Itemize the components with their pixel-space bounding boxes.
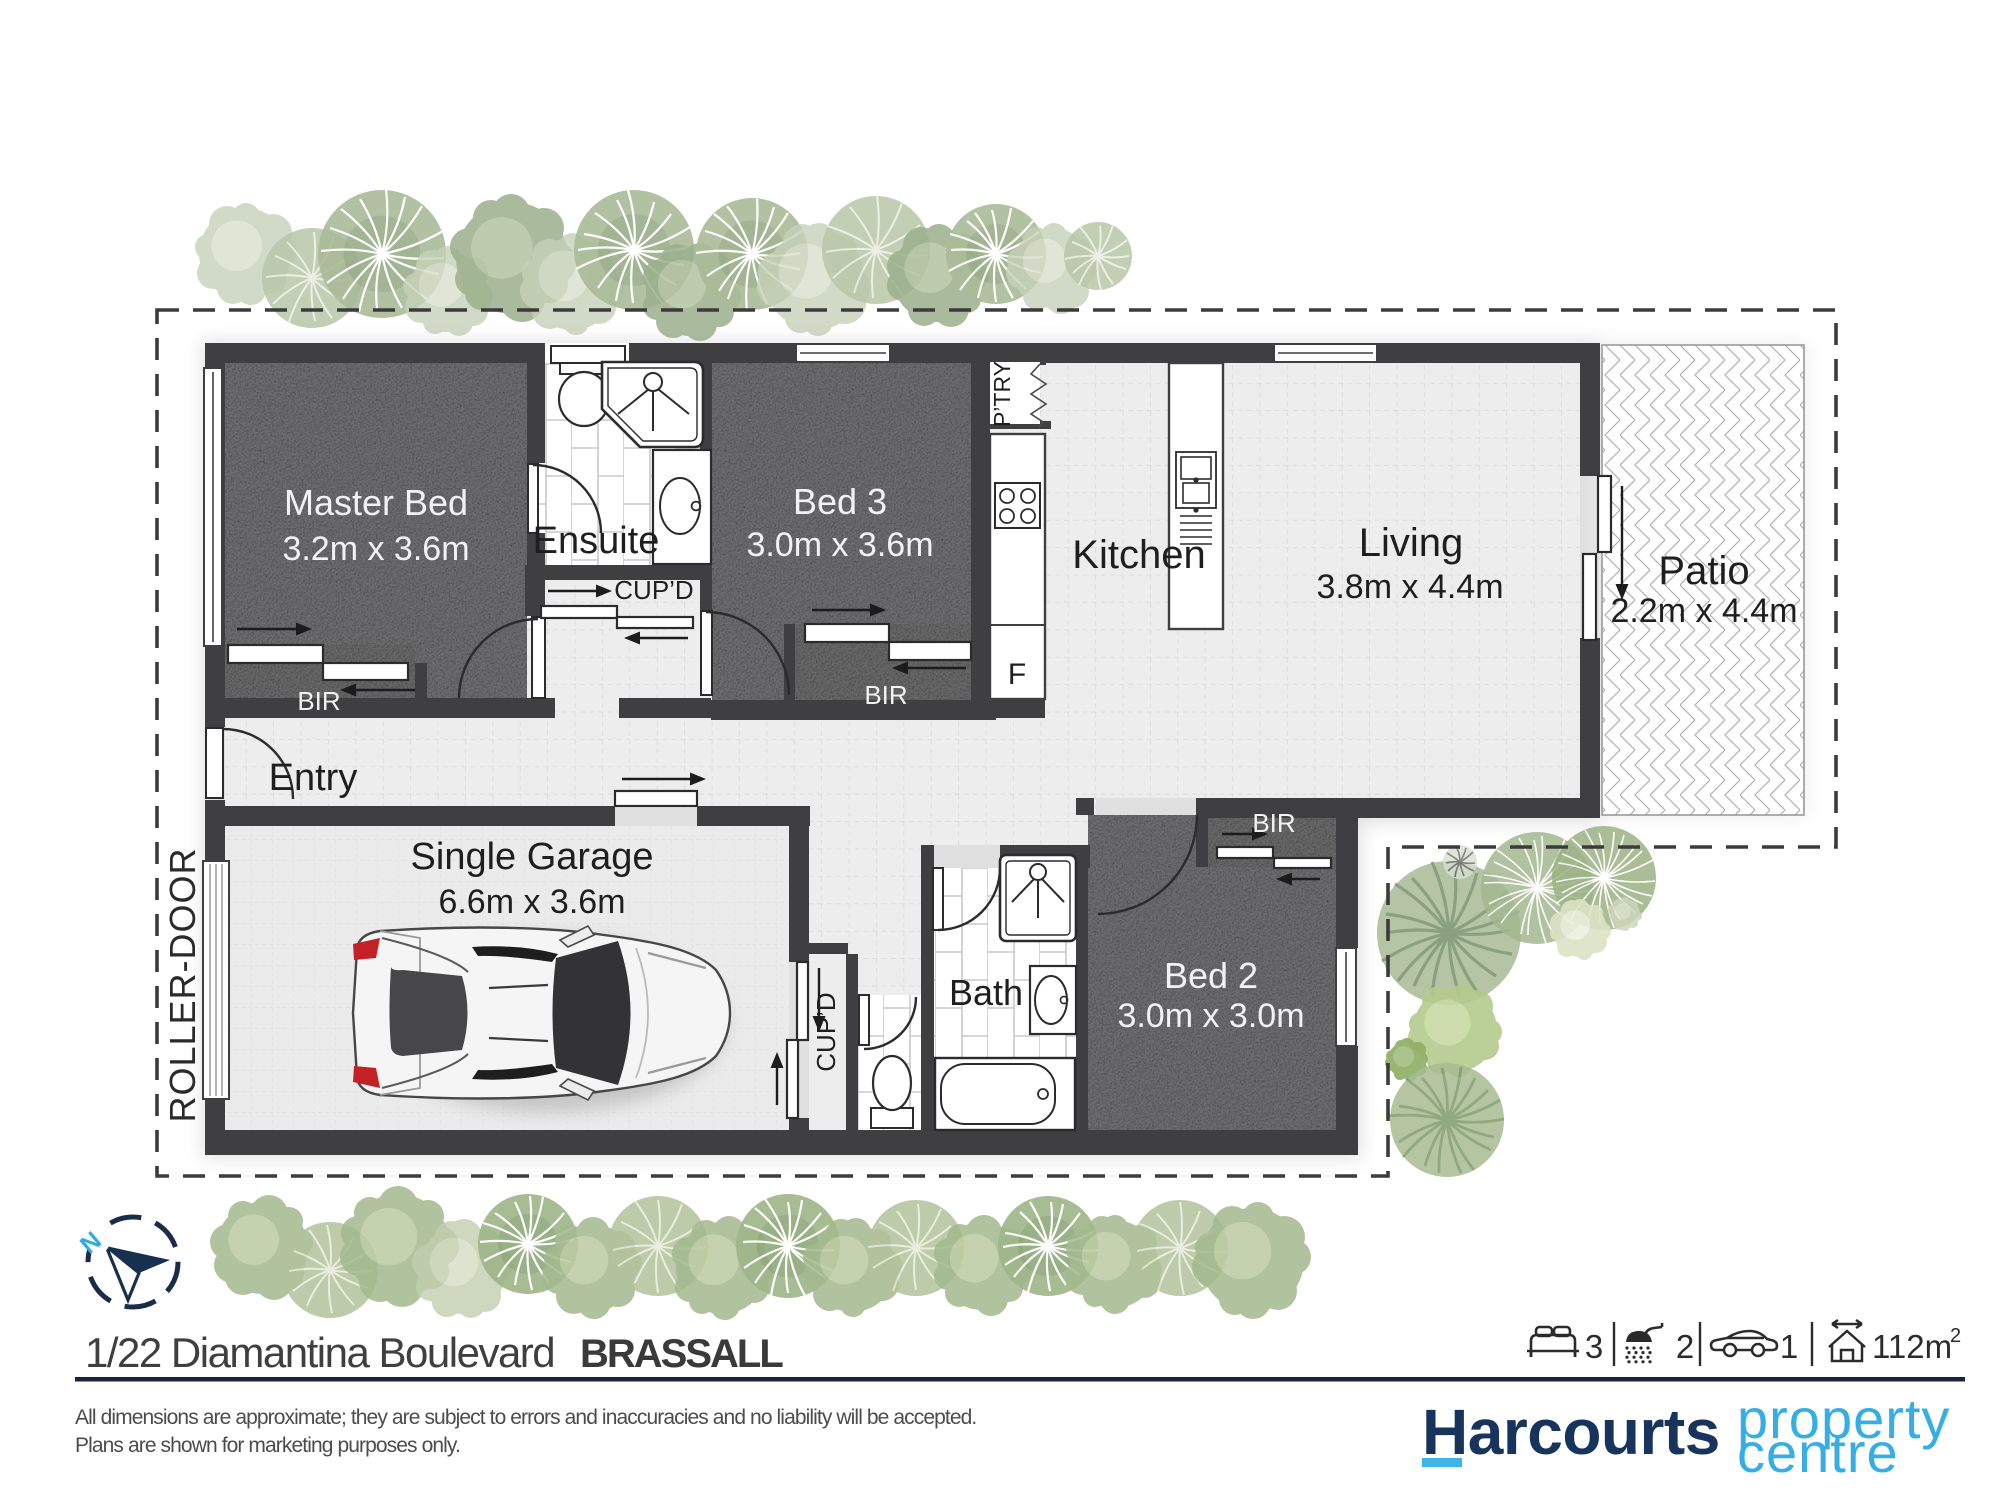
svg-text:1: 1 xyxy=(1780,1328,1798,1365)
svg-text:3.0m x 3.6m: 3.0m x 3.6m xyxy=(746,526,933,564)
svg-text:P’TRY: P’TRY xyxy=(989,361,1015,427)
svg-text:3.8m x 4.4m: 3.8m x 4.4m xyxy=(1316,568,1503,606)
svg-text:6.6m x 3.6m: 6.6m x 3.6m xyxy=(438,883,625,921)
svg-text:BIR: BIR xyxy=(297,686,340,716)
svg-text:All dimensions are approximate: All dimensions are approximate; they are… xyxy=(75,1406,976,1429)
svg-text:3.2m x 3.6m: 3.2m x 3.6m xyxy=(282,530,469,568)
svg-text:112m: 112m xyxy=(1872,1328,1952,1365)
svg-text:Bed 2: Bed 2 xyxy=(1164,955,1258,996)
svg-text:CUP’D: CUP’D xyxy=(614,575,693,605)
svg-text:BIR: BIR xyxy=(864,680,907,710)
svg-text:Kitchen: Kitchen xyxy=(1072,533,1205,577)
svg-text:BRASSALL: BRASSALL xyxy=(580,1332,783,1376)
svg-text:2.2m x 4.4m: 2.2m x 4.4m xyxy=(1610,592,1797,630)
svg-text:Master Bed: Master Bed xyxy=(284,482,468,523)
svg-text:BIR: BIR xyxy=(1252,808,1295,838)
svg-text:Harcourts: Harcourts xyxy=(1422,1396,1720,1468)
svg-text:1/22 Diamantina Boulevard: 1/22 Diamantina Boulevard xyxy=(85,1329,554,1376)
svg-text:Entry: Entry xyxy=(269,757,358,799)
svg-text:centre: centre xyxy=(1737,1421,1899,1484)
svg-text:ROLLER-DOOR: ROLLER-DOOR xyxy=(162,847,203,1122)
svg-text:Bed 3: Bed 3 xyxy=(793,481,887,522)
svg-text:F: F xyxy=(1008,658,1026,691)
svg-text:2: 2 xyxy=(1950,1325,1961,1347)
svg-text:Plans are shown for marketing: Plans are shown for marketing purposes o… xyxy=(75,1434,460,1457)
svg-text:Bath: Bath xyxy=(949,972,1023,1013)
svg-text:3: 3 xyxy=(1585,1328,1603,1365)
svg-text:Patio: Patio xyxy=(1658,549,1749,593)
svg-text:2: 2 xyxy=(1676,1328,1694,1365)
svg-text:3.0m x 3.0m: 3.0m x 3.0m xyxy=(1117,997,1304,1035)
svg-text:CUP’D: CUP’D xyxy=(811,992,841,1071)
svg-text:Single Garage: Single Garage xyxy=(411,836,654,878)
svg-text:Living: Living xyxy=(1359,521,1464,565)
svg-text:Ensuite: Ensuite xyxy=(533,520,660,562)
